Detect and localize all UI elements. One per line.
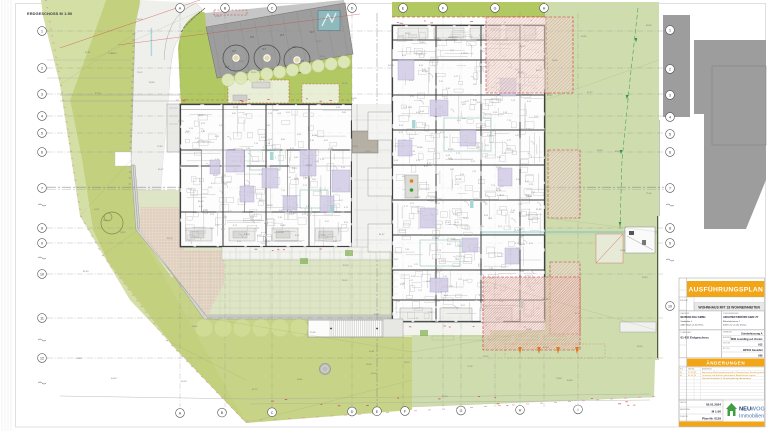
svg-text:9: 9 <box>669 242 671 246</box>
svg-text:84,68: 84,68 <box>312 135 318 137</box>
svg-text:81,83: 81,83 <box>83 271 89 273</box>
svg-text:34,98: 34,98 <box>526 196 532 198</box>
svg-text:AUSFÜHRUNGSPLAN: AUSFÜHRUNGSPLAN <box>688 285 763 294</box>
svg-text:Immobilien: Immobilien <box>739 414 764 420</box>
svg-text:G: G <box>494 7 497 11</box>
svg-text:87,75: 87,75 <box>252 389 258 391</box>
svg-text:88,10: 88,10 <box>259 200 265 202</box>
svg-text:42,37: 42,37 <box>547 95 553 97</box>
svg-text:91,52: 91,52 <box>342 83 348 85</box>
svg-text:NEU: NEU <box>739 407 751 413</box>
svg-text:26,98: 26,98 <box>278 232 284 234</box>
svg-text:8: 8 <box>669 227 671 231</box>
svg-text:78,22: 78,22 <box>120 232 126 234</box>
svg-text:11: 11 <box>40 317 44 321</box>
svg-text:92,20: 92,20 <box>343 265 349 267</box>
svg-text:80,80: 80,80 <box>448 149 454 151</box>
svg-text:912: 912 <box>758 343 763 347</box>
svg-text:86,70: 86,70 <box>536 70 542 72</box>
svg-text:5: 5 <box>41 132 43 136</box>
svg-text:26,17: 26,17 <box>213 175 219 177</box>
svg-text:73,20: 73,20 <box>496 167 502 169</box>
svg-text:28,70: 28,70 <box>518 72 524 74</box>
svg-text:39,94: 39,94 <box>149 82 155 84</box>
svg-text:67,27: 67,27 <box>587 92 593 94</box>
svg-text:54,56: 54,56 <box>417 147 423 149</box>
svg-text:45,27: 45,27 <box>158 169 164 171</box>
svg-text:43,81: 43,81 <box>369 351 375 353</box>
svg-text:9: 9 <box>41 242 43 246</box>
svg-text:77,48: 77,48 <box>467 366 473 368</box>
svg-text:59,35: 59,35 <box>552 60 558 62</box>
svg-text:67,46: 67,46 <box>352 146 358 148</box>
svg-text:85,69: 85,69 <box>646 25 652 27</box>
svg-text:53,98: 53,98 <box>526 329 532 331</box>
svg-text:13,13: 13,13 <box>365 151 371 153</box>
svg-text:34,40: 34,40 <box>192 326 198 328</box>
svg-text:MASSSTAB: MASSSTAB <box>680 408 690 411</box>
svg-text:21,80: 21,80 <box>316 41 322 43</box>
svg-text:48,77: 48,77 <box>520 46 526 48</box>
svg-text:12.12.23: 12.12.23 <box>688 372 697 374</box>
svg-text:71,23: 71,23 <box>463 218 469 220</box>
svg-text:D: D <box>351 7 354 11</box>
svg-text:99,49: 99,49 <box>452 37 458 39</box>
svg-text:33,99: 33,99 <box>273 110 279 112</box>
svg-text:GEBÄUDE: GEBÄUDE <box>723 331 733 334</box>
svg-text:75,78: 75,78 <box>178 121 184 123</box>
svg-text:4: 4 <box>41 115 43 119</box>
svg-text:86,16: 86,16 <box>320 56 326 58</box>
svg-text:5: 5 <box>669 133 671 137</box>
svg-text:10: 10 <box>40 273 44 277</box>
svg-text:18,82: 18,82 <box>280 225 286 227</box>
svg-text:BP101 GesmbH: BP101 GesmbH <box>743 348 762 352</box>
svg-text:45,63: 45,63 <box>543 347 549 349</box>
svg-text:71,49: 71,49 <box>646 193 652 195</box>
svg-text:68,94: 68,94 <box>597 150 603 152</box>
svg-text:4020 Linz an der Donau: 4020 Linz an der Donau <box>723 324 747 327</box>
svg-text:37,95: 37,95 <box>456 179 462 181</box>
svg-text:56,84: 56,84 <box>103 220 109 222</box>
svg-text:19,36: 19,36 <box>620 250 626 252</box>
svg-text:3: 3 <box>41 93 43 97</box>
svg-text:63,78: 63,78 <box>215 16 221 18</box>
svg-text:23,71: 23,71 <box>292 168 298 170</box>
svg-text:DATUM: DATUM <box>688 367 694 370</box>
svg-text:18,66: 18,66 <box>76 358 82 360</box>
svg-text:PLANINHALT: PLANINHALT <box>681 331 693 334</box>
svg-text:67,81: 67,81 <box>85 52 91 54</box>
svg-text:8: 8 <box>41 227 43 231</box>
svg-text:C: C <box>271 411 274 415</box>
svg-text:G: G <box>460 409 463 413</box>
svg-text:1: 1 <box>41 30 43 34</box>
svg-text:PLAN NR.: PLAN NR. <box>680 415 689 418</box>
svg-text:4: 4 <box>669 116 671 120</box>
svg-text:58,39: 58,39 <box>642 277 648 279</box>
svg-text:70,35: 70,35 <box>108 53 114 55</box>
svg-text:Anpassung Wohnungstrennwände l: Anpassung Wohnungstrennwände lt. Besprec… <box>702 371 766 374</box>
svg-text:70,99: 70,99 <box>556 378 562 380</box>
svg-text:25,38: 25,38 <box>310 332 316 334</box>
svg-text:56,28: 56,28 <box>181 381 187 383</box>
svg-text:PROJEKT: PROJEKT <box>680 300 689 302</box>
svg-text:Diverse Korrekturen lt. Einrei: Diverse Korrekturen lt. Einreichplanung … <box>702 377 752 380</box>
svg-text:I: I <box>578 408 579 412</box>
svg-text:97,81: 97,81 <box>496 190 502 192</box>
svg-text:52,91: 52,91 <box>374 314 380 316</box>
svg-text:C: C <box>271 7 274 11</box>
svg-text:91,34: 91,34 <box>167 238 173 240</box>
svg-text:93,96: 93,96 <box>567 380 573 382</box>
svg-text:76,12: 76,12 <box>342 280 348 282</box>
svg-text:75,63: 75,63 <box>419 42 425 44</box>
svg-text:BAUHERR: BAUHERR <box>681 312 690 315</box>
svg-text:14,21: 14,21 <box>94 209 100 211</box>
svg-text:PLANVERFASSER: PLANVERFASSER <box>723 312 739 315</box>
svg-text:85,51: 85,51 <box>233 107 239 109</box>
svg-text:17,83: 17,83 <box>432 238 438 240</box>
svg-text:10: 10 <box>668 305 672 309</box>
svg-text:WOHNHAUS MIT 18 WOHNEINHEITEN: WOHNHAUS MIT 18 WOHNEINHEITEN <box>698 306 760 310</box>
svg-text:ÄNDERUNGEN: ÄNDERUNGEN <box>706 360 745 366</box>
svg-text:93,16: 93,16 <box>251 72 257 74</box>
svg-text:Plan-Nr. 0129: Plan-Nr. 0129 <box>702 417 721 421</box>
svg-text:02.01.2024: 02.01.2024 <box>706 403 721 407</box>
svg-text:63,74: 63,74 <box>404 362 410 364</box>
svg-text:93,23: 93,23 <box>137 19 143 21</box>
svg-text:WOG: WOG <box>751 407 766 413</box>
svg-text:29,92: 29,92 <box>239 61 245 63</box>
svg-text:3: 3 <box>669 94 671 98</box>
svg-text:75,12: 75,12 <box>137 72 143 74</box>
svg-text:ERDGESCHOSS M 1:50: ERDGESCHOSS M 1:50 <box>27 11 72 16</box>
svg-text:2: 2 <box>41 67 43 71</box>
svg-text:34,45: 34,45 <box>581 36 587 38</box>
svg-text:72,63: 72,63 <box>157 146 163 148</box>
svg-text:17,51: 17,51 <box>425 60 431 62</box>
svg-text:38,15: 38,15 <box>405 33 411 35</box>
svg-text:97,78: 97,78 <box>95 93 101 95</box>
svg-text:50,19: 50,19 <box>306 165 312 167</box>
svg-text:01-EG Erdgeschoss: 01-EG Erdgeschoss <box>681 336 710 340</box>
svg-text:4400 Steyr an der Enns: 4400 Steyr an der Enns <box>681 324 705 327</box>
svg-text:M 1:50: M 1:50 <box>712 410 722 414</box>
svg-text:7: 7 <box>669 187 671 191</box>
svg-text:ÄNDERUNG: ÄNDERUNG <box>702 367 712 370</box>
svg-text:4060 Leonding a.d. Krems: 4060 Leonding a.d. Krems <box>730 337 763 341</box>
svg-text:D: D <box>351 410 354 414</box>
svg-text:81,97: 81,97 <box>379 234 385 236</box>
svg-text:41,99: 41,99 <box>536 209 542 211</box>
svg-text:68,18: 68,18 <box>267 205 273 207</box>
svg-text:036: 036 <box>758 354 763 358</box>
svg-text:30,31: 30,31 <box>297 379 303 381</box>
svg-text:63,28: 63,28 <box>388 65 394 67</box>
svg-text:55,38: 55,38 <box>366 364 372 366</box>
svg-text:1: 1 <box>669 29 671 33</box>
svg-text:H: H <box>519 409 522 413</box>
svg-text:87,10: 87,10 <box>575 313 581 315</box>
svg-text:99,43: 99,43 <box>637 346 643 348</box>
svg-text:ARCHITEKTURBÜRO GRAF ZT: ARCHITEKTURBÜRO GRAF ZT <box>723 316 759 319</box>
svg-text:54,12: 54,12 <box>483 356 489 358</box>
svg-text:85,33: 85,33 <box>198 201 204 203</box>
svg-text:65,34: 65,34 <box>371 373 377 375</box>
svg-text:18,36: 18,36 <box>434 38 440 40</box>
svg-text:42,54: 42,54 <box>422 71 428 73</box>
svg-text:6: 6 <box>41 151 43 155</box>
svg-text:67,46: 67,46 <box>442 396 448 398</box>
svg-text:NEUWOG BAU GMBH: NEUWOG BAU GMBH <box>681 316 706 319</box>
svg-text:39,35: 39,35 <box>543 299 549 301</box>
svg-text:02.01.24: 02.01.24 <box>688 375 697 377</box>
svg-text:2: 2 <box>669 68 671 72</box>
svg-text:H: H <box>543 7 546 11</box>
svg-text:46,26: 46,26 <box>351 98 357 100</box>
svg-text:DATUM: DATUM <box>680 401 687 404</box>
svg-text:24,72: 24,72 <box>415 197 421 199</box>
svg-text:Terrassen und Balkone überarbe: Terrassen und Balkone überarbeitet, Abst… <box>702 374 756 377</box>
svg-text:Stadtplatz 1: Stadtplatz 1 <box>681 320 693 323</box>
svg-text:6: 6 <box>669 151 671 155</box>
svg-text:12: 12 <box>40 357 44 361</box>
svg-text:7: 7 <box>41 187 43 191</box>
svg-text:EZ / KG: EZ / KG <box>723 348 730 350</box>
svg-text:60,69: 60,69 <box>111 378 117 380</box>
svg-text:Bahnhofstrasse 7: Bahnhofstrasse 7 <box>723 320 741 323</box>
svg-text:88,24: 88,24 <box>615 151 621 153</box>
svg-text:GST. NR.: GST. NR. <box>723 343 731 345</box>
svg-text:Sonderfassung A: Sonderfassung A <box>741 332 763 336</box>
